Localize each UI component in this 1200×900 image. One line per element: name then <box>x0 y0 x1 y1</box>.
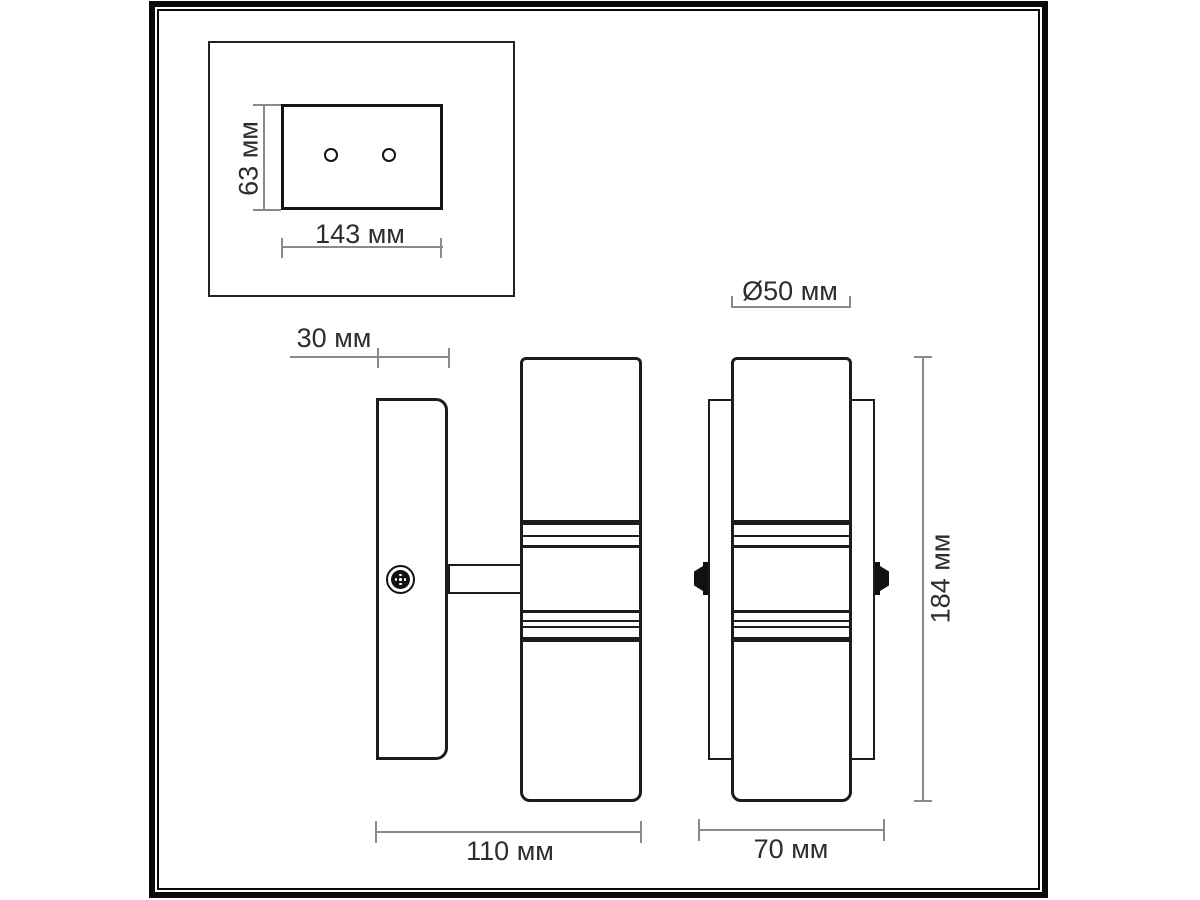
side-mounting-arm <box>448 564 524 594</box>
connector-pin <box>404 578 407 581</box>
dim-label-plate-width: 143 мм <box>290 221 430 248</box>
mounting-plate-outline <box>281 104 443 210</box>
dim-line-shade-diameter <box>731 306 851 308</box>
shade-ring-line <box>523 520 639 525</box>
connector-pin <box>395 578 398 581</box>
dim-line-total-height <box>922 357 924 802</box>
shade-ring-line <box>734 620 849 622</box>
dim-tick <box>914 356 932 358</box>
dim-line-shade-width <box>698 829 885 831</box>
dim-label-wall-plate-depth: 30 мм <box>274 325 394 352</box>
dim-label-total-depth: 110 мм <box>440 838 580 865</box>
dim-line-wall-plate-depth <box>290 356 450 358</box>
set-screw-left <box>703 562 708 595</box>
dim-tick <box>698 819 700 841</box>
connector-detail-inner <box>391 570 410 589</box>
connector-pin <box>399 583 402 586</box>
dim-tick <box>375 821 377 843</box>
mounting-hole-left <box>324 148 338 162</box>
dim-tick <box>914 800 932 802</box>
dim-tick <box>448 348 450 368</box>
connector-pin <box>399 574 402 577</box>
shade-ring-line <box>734 626 849 628</box>
shade-ring-line <box>734 535 849 537</box>
drawing-canvas: 63 мм 143 мм 30 мм 110 мм Ø50 мм <box>0 0 1200 900</box>
shade-ring-line <box>523 610 639 613</box>
dim-label-total-height: 184 мм <box>928 509 955 649</box>
front-shade-cylinder <box>731 357 852 802</box>
shade-ring-line <box>734 637 849 642</box>
dim-tick <box>640 821 642 843</box>
dim-tick <box>281 238 283 258</box>
dim-label-shade-width: 70 мм <box>731 836 851 863</box>
shade-ring-line <box>523 637 639 642</box>
mounting-hole-right <box>382 148 396 162</box>
connector-pin <box>399 578 402 581</box>
dim-tick <box>883 819 885 841</box>
shade-ring-line <box>734 610 849 613</box>
side-shade-cylinder <box>520 357 642 802</box>
dim-tick <box>440 238 442 258</box>
shade-ring-line <box>523 626 639 628</box>
dim-label-shade-diameter: Ø50 мм <box>720 278 860 305</box>
set-screw-right <box>875 562 880 595</box>
shade-ring-line <box>523 620 639 622</box>
shade-ring-line <box>734 520 849 525</box>
dim-label-plate-height: 63 мм <box>236 99 263 219</box>
dim-line-total-depth <box>375 831 642 833</box>
shade-ring-line <box>523 535 639 537</box>
shade-ring-line <box>734 545 849 548</box>
shade-ring-line <box>523 545 639 548</box>
